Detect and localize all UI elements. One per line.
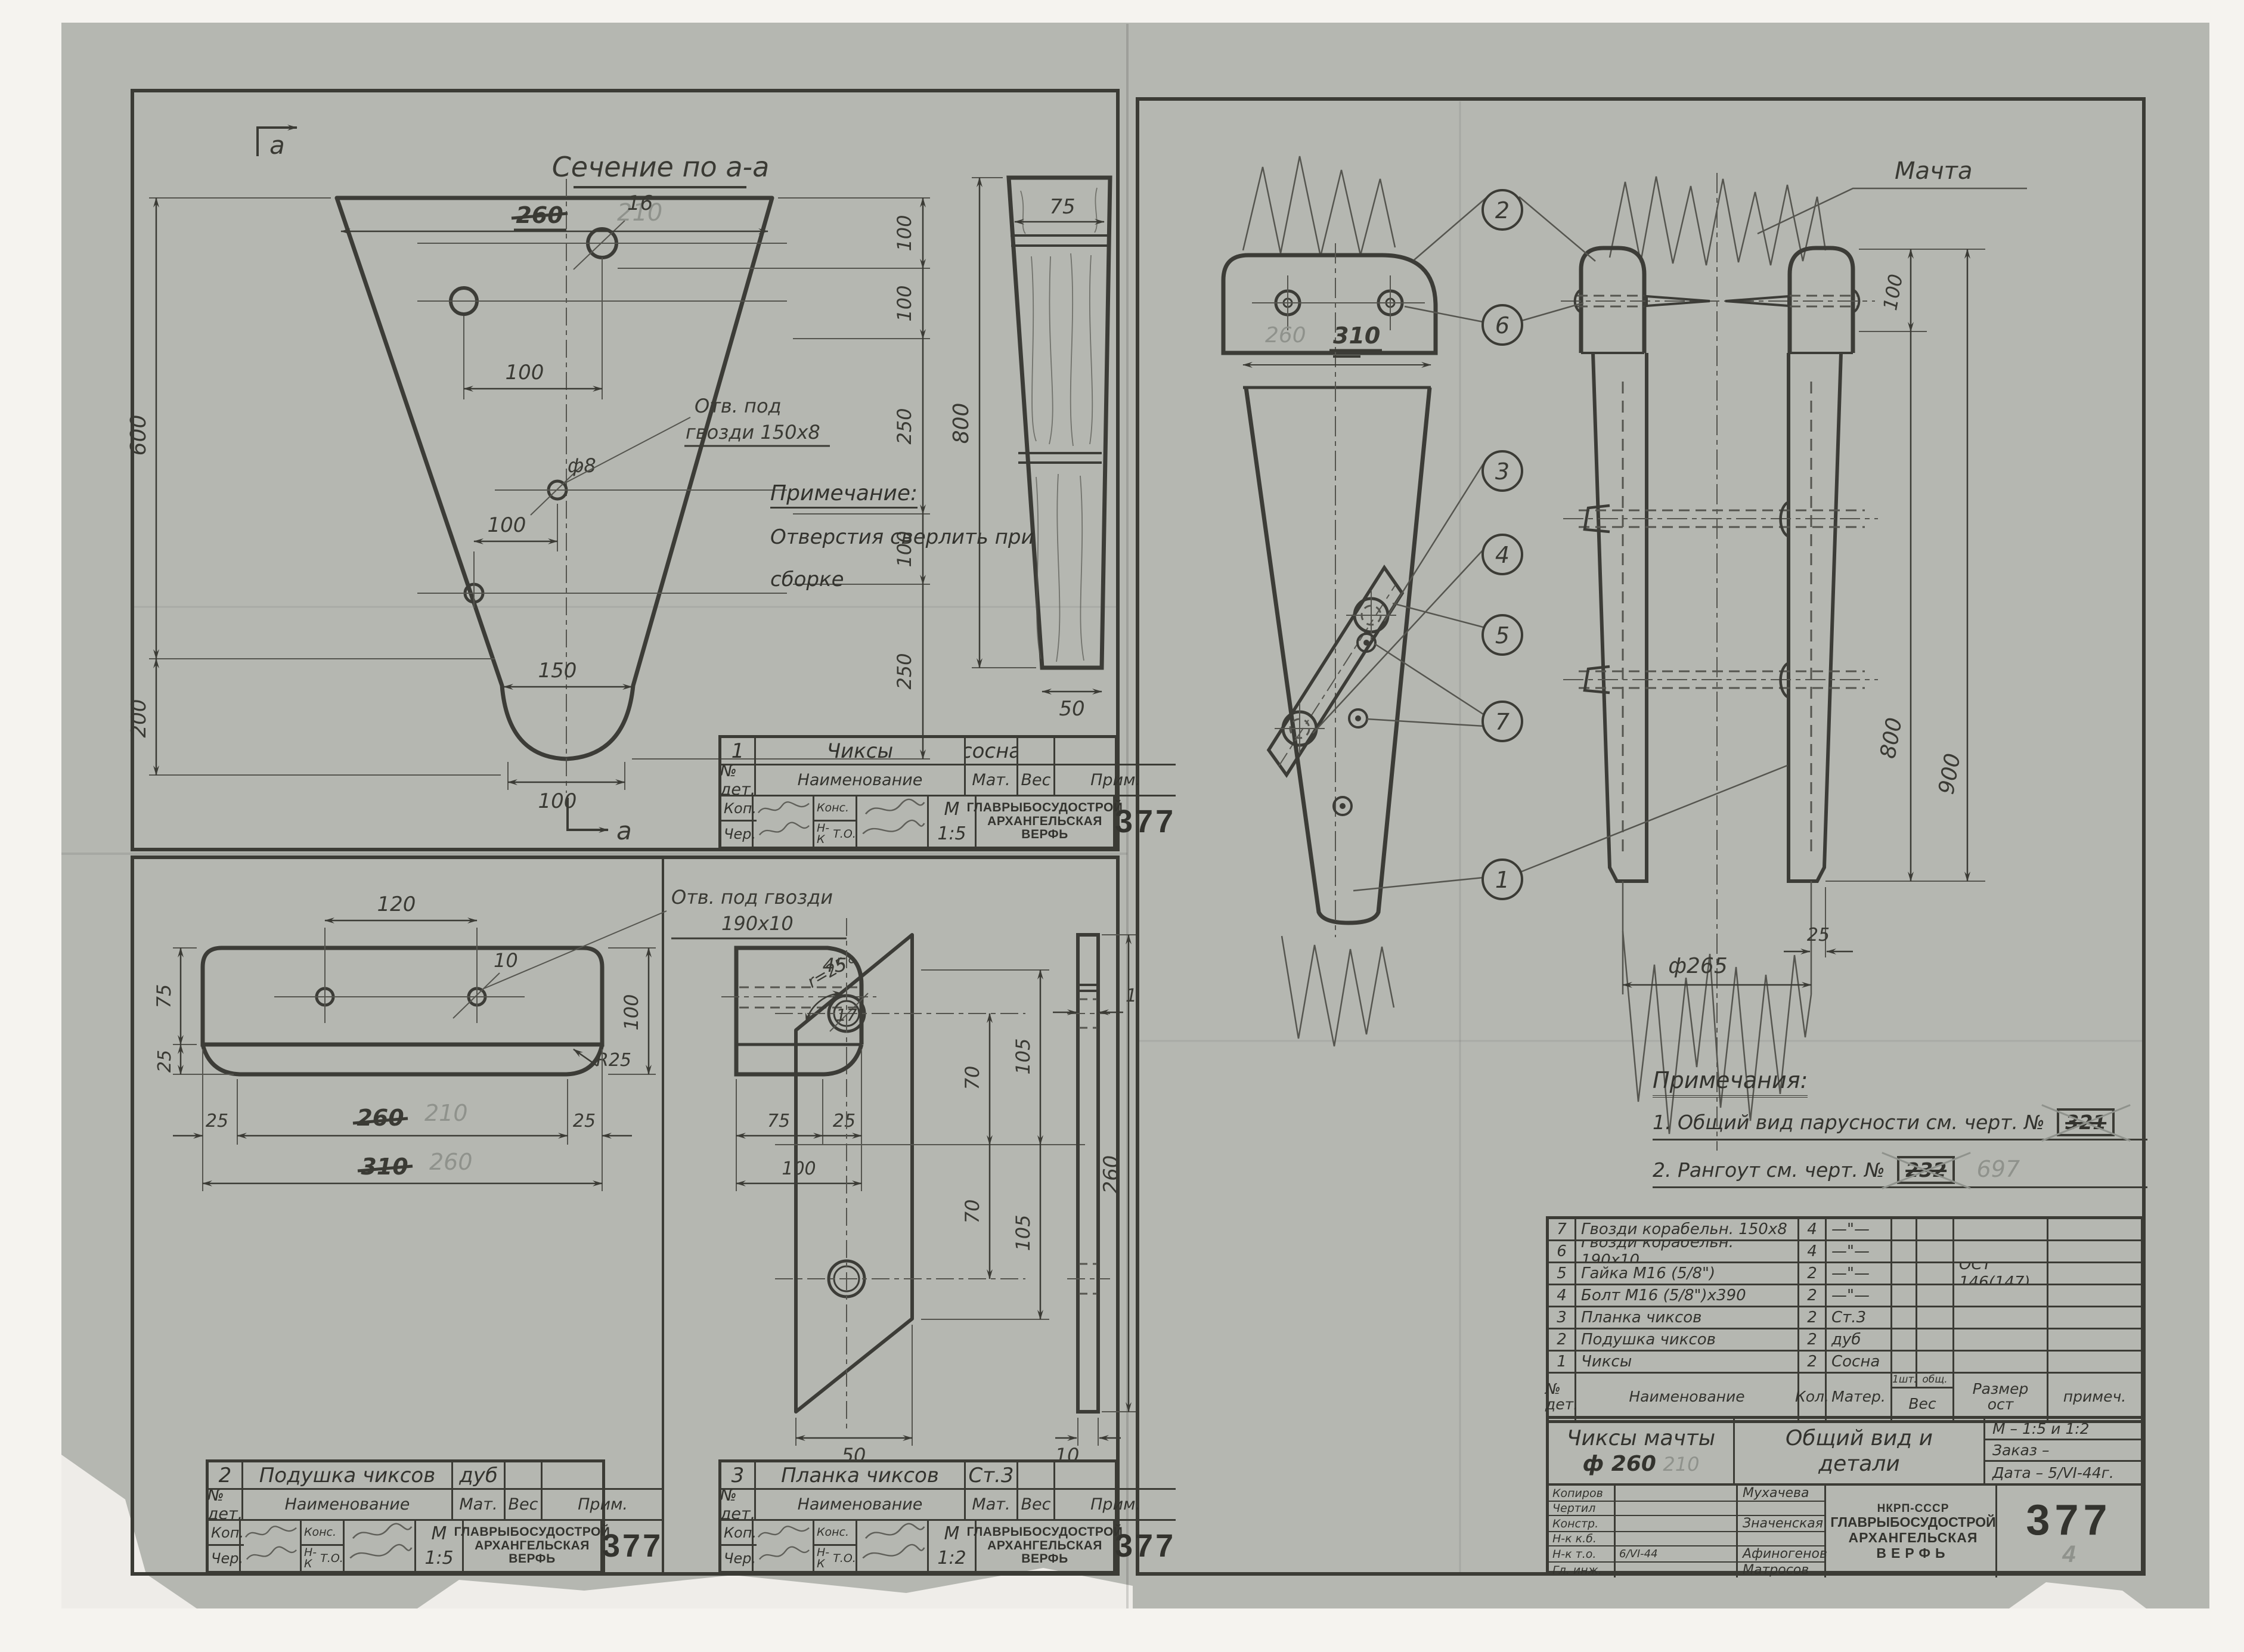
- parts-hdr-qty: Кол.: [1799, 1374, 1827, 1420]
- main-order: Заказ –: [1985, 1440, 2141, 1462]
- svg-text:ф265: ф265: [1668, 954, 1728, 978]
- svg-text:Отв. под: Отв. под: [695, 395, 782, 417]
- parts-hdr-weight: 1шт.общ. Вес: [1892, 1374, 1954, 1420]
- tb1-part-name: Чиксы: [756, 738, 966, 764]
- svg-text:260: 260: [1265, 323, 1306, 348]
- parts-header: № дет. Наименование Кол. Матер. 1шт.общ.…: [1549, 1374, 2141, 1420]
- notes-item-1: 1. Общий вид парусности см. черт. № 321: [1653, 1108, 2147, 1140]
- tb2-hdr-prim: Прим.: [543, 1490, 663, 1519]
- section-title: Сечение по а-а: [552, 151, 770, 187]
- svg-text:260: 260: [1099, 1155, 1123, 1194]
- svg-text:120: 120: [377, 892, 416, 916]
- svg-text:100: 100: [893, 215, 916, 251]
- main-scale: М – 1:5 и 1:2: [1985, 1419, 2141, 1440]
- tb2-hdr-mat: Мат.: [453, 1490, 506, 1519]
- notes-title: Примечания:: [1653, 1067, 1808, 1098]
- name-nkto: Афиногенов: [1738, 1546, 1826, 1563]
- svg-text:25: 25: [154, 1050, 175, 1073]
- svg-text:100: 100: [893, 285, 916, 321]
- svg-text:260: 260: [429, 1149, 473, 1175]
- parts-list-table: 7Гвозди корабельн. 150х84—"— 6Гвозди кор…: [1546, 1216, 2144, 1423]
- tb2-part-mat: дуб: [453, 1462, 506, 1488]
- role-nkto: Н-к т.о.: [1549, 1546, 1616, 1563]
- parts-row: 5Гайка М16 (5/8")2—"—ОСТ 146(147): [1549, 1263, 2141, 1285]
- svg-text:310: 310: [1333, 323, 1380, 349]
- tb2-hdr-wt: Вес: [506, 1490, 543, 1519]
- main-title-pencil: 210: [1663, 1453, 1699, 1476]
- parts-row: 1Чиксы2Сосна: [1549, 1352, 2141, 1374]
- main-title: Чиксы мачты ф 260 210: [1549, 1419, 1735, 1483]
- main-subtitle: Общий вид идетали: [1735, 1419, 1985, 1483]
- tb1-hdr-no: № дет.: [721, 765, 756, 795]
- tb1-part-mat: сосна: [966, 738, 1018, 764]
- note-drill-on-assembly: Примечание: Отверстия сверлить при сборк…: [770, 471, 1050, 601]
- callout-5: 5: [1495, 622, 1510, 649]
- svg-text:200: 200: [127, 699, 151, 738]
- callout-6: 6: [1495, 312, 1510, 339]
- parts-hdr-no: № дет.: [1549, 1374, 1576, 1420]
- tb1-org1: ГЛАВРЫБОСУДОСТРОЙ: [967, 801, 1123, 815]
- svg-text:210: 210: [424, 1100, 468, 1126]
- svg-text:50: 50: [1059, 697, 1084, 721]
- tb3-hdr-prim: Прим.: [1055, 1490, 1176, 1519]
- svg-text:70: 70: [961, 1200, 984, 1224]
- svg-text:25: 25: [206, 1111, 228, 1132]
- parts-hdr-prim: примеч.: [2048, 1374, 2141, 1420]
- callout-2: 2: [1495, 197, 1510, 224]
- tb1-part-no: 1: [721, 738, 756, 764]
- tb1-cher: Чер.: [721, 822, 757, 847]
- tb3-part-name: Планка чиксов: [756, 1462, 966, 1488]
- tb3-part-no: 3: [721, 1462, 756, 1488]
- svg-text:100: 100: [620, 994, 643, 1030]
- svg-text:600: 600: [126, 415, 151, 456]
- note-title: Примечание:: [770, 481, 918, 509]
- svg-text:75: 75: [1049, 195, 1075, 219]
- svg-text:800: 800: [949, 403, 974, 444]
- tb1-kons: Конс.: [814, 796, 856, 822]
- svg-text:150: 150: [538, 659, 577, 683]
- svg-text:а: а: [616, 816, 632, 845]
- svg-text:100: 100: [782, 1158, 816, 1179]
- svg-text:105: 105: [1012, 1038, 1034, 1074]
- drawing-sheet: Сечение по а-а а 260 210 16: [0, 0, 2244, 1652]
- notes-item-2: 2. Рангоут см. черт. № 232 697: [1653, 1156, 2147, 1188]
- shipyard-logo-cell: АСВ НКРП-СССР ГЛАВРЫБОСУДОСТРОЙ АРХАНГЕЛ…: [1826, 1486, 1997, 1577]
- svg-text:45°: 45°: [823, 954, 857, 977]
- svg-text:70: 70: [961, 1066, 984, 1090]
- name-kopirov: Мухачева: [1738, 1486, 1826, 1502]
- svg-text:100: 100: [506, 361, 544, 385]
- callout-4: 4: [1495, 542, 1510, 568]
- svg-text:25: 25: [573, 1111, 596, 1132]
- notes-item1-text: 1. Общий вид парусности см. черт. №: [1653, 1111, 2045, 1134]
- main-title-block: Чиксы мачты ф 260 210 Общий вид идетали …: [1546, 1416, 2144, 1574]
- tb1-hdr-mat: Мат.: [966, 765, 1018, 795]
- name-glinzh: Матросов: [1738, 1563, 1826, 1577]
- parts-hdr-mat: Матер.: [1827, 1374, 1892, 1420]
- role-nkkb: Н-к к.б.: [1549, 1532, 1616, 1546]
- svg-text:16: 16: [627, 191, 653, 215]
- parts-row: 4Болт М16 (5/8")х3902—"—: [1549, 1285, 2141, 1307]
- tb1-number: 377: [1115, 796, 1176, 847]
- name-nkkb: [1738, 1532, 1826, 1546]
- parts-row: 7Гвозди корабельн. 150х84—"—: [1549, 1219, 2141, 1241]
- notes-item1-number: 321: [2057, 1108, 2115, 1136]
- svg-text:25: 25: [833, 1111, 856, 1132]
- tb2-scale: 1:5: [424, 1548, 453, 1569]
- tb1-org2: АРХАНГЕЛЬСКАЯ: [987, 815, 1102, 829]
- tb2-hdr-no: № дет.: [209, 1490, 243, 1519]
- svg-text:100: 100: [538, 789, 577, 813]
- tb2-number: 377: [602, 1521, 663, 1571]
- sheet-number-pencil: 4: [2062, 1541, 2075, 1568]
- role-konstr: Констр.: [1549, 1516, 1616, 1532]
- svg-text:190х10: 190х10: [721, 912, 794, 935]
- tb1-scale: 1:5: [937, 823, 966, 844]
- drawing-number-cell: 377 4: [1997, 1486, 2141, 1577]
- name-chertil: [1738, 1502, 1826, 1516]
- role-glinzh: Гл. инж.: [1549, 1563, 1616, 1577]
- tb3-number: 377: [1115, 1521, 1176, 1571]
- tb3-hdr-name: Наименование: [756, 1490, 966, 1519]
- tb3-part-mat: Ст.3: [966, 1462, 1018, 1488]
- section-title-text: Сечение по а-а: [552, 151, 770, 183]
- tb1-org3: ВЕРФЬ: [1021, 828, 1068, 842]
- org-name: НКРП-СССР ГЛАВРЫБОСУДОСТРОЙ АРХАНГЕЛЬСКА…: [1830, 1502, 1995, 1561]
- tb3-hdr-no: № дет.: [721, 1490, 756, 1519]
- notes-item2-text: 2. Рангоут см. черт. №: [1653, 1158, 1885, 1182]
- tb3-scale: 1:2: [937, 1548, 966, 1569]
- svg-text:Мачта: Мачта: [1895, 157, 1972, 185]
- callout-7: 7: [1495, 709, 1510, 735]
- svg-text:17: 17: [836, 1005, 857, 1025]
- title-block-plank: 3 Планка чиксов Ст.3 № дет. Наименование…: [718, 1459, 1118, 1574]
- svg-text:1: 1: [1126, 985, 1137, 1006]
- tb1-kop: Коп.: [721, 796, 757, 822]
- main-date: Дата – 5/VI-44г.: [1985, 1462, 2141, 1483]
- svg-text:Отв. под гвозди: Отв. под гвозди: [671, 886, 833, 909]
- parts-row: 3Планка чиксов2Ст.3: [1549, 1307, 2141, 1329]
- name-konstr: Значенская: [1738, 1516, 1826, 1532]
- notes-references: Примечания: 1. Общий вид парусности см. …: [1653, 1067, 2147, 1204]
- role-chertil: Чертил: [1549, 1502, 1616, 1516]
- tb2-hdr-name: Наименование: [243, 1490, 453, 1519]
- tb1-hdr-wt: Вес: [1018, 765, 1055, 795]
- callout-3: 3: [1495, 458, 1510, 485]
- note-line1: Отверстия сверлить при: [770, 525, 1034, 549]
- svg-text:10: 10: [494, 949, 518, 972]
- svg-text:75: 75: [767, 1111, 790, 1132]
- notes-item2-number: 232: [1897, 1156, 1955, 1184]
- drawing-number: 377: [2026, 1496, 2112, 1545]
- parts-row: 6Гвозди корабельн. 190х104—"—: [1549, 1241, 2141, 1263]
- tb2-part-no: 2: [209, 1462, 243, 1488]
- svg-text:гвозди 150х8: гвозди 150х8: [686, 421, 820, 444]
- notes-item2-pencil-number: 697: [1977, 1156, 2020, 1182]
- signature-date: 6/VI-44: [1619, 1548, 1658, 1560]
- tb1-hdr-prim: Прим.: [1055, 765, 1176, 795]
- svg-text:а: а: [269, 131, 285, 160]
- svg-text:250: 250: [893, 408, 916, 444]
- svg-text:105: 105: [1012, 1214, 1034, 1251]
- svg-text:R25: R25: [596, 1050, 631, 1071]
- svg-text:260: 260: [357, 1105, 404, 1131]
- title-block-cheeks: 1 Чиксы сосна № дет. Наименование Мат. В…: [718, 735, 1118, 850]
- svg-text:75: 75: [153, 984, 175, 1009]
- tb3-hdr-mat: Мат.: [966, 1490, 1018, 1519]
- parts-hdr-razm: Размерост: [1954, 1374, 2048, 1420]
- parts-row: 2Подушка чиксов2дуб: [1549, 1329, 2141, 1352]
- title-block-cushion: 2 Подушка чиксов дуб № дет. Наименование…: [206, 1459, 605, 1574]
- tb3-hdr-wt: Вес: [1018, 1490, 1055, 1519]
- parts-hdr-name: Наименование: [1576, 1374, 1799, 1420]
- role-kopirov: Копиров: [1549, 1486, 1616, 1502]
- svg-text:250: 250: [893, 653, 916, 689]
- tb1-scale-m: М: [944, 799, 960, 820]
- callout-1: 1: [1495, 867, 1510, 893]
- note-line2: сборке: [770, 568, 844, 591]
- svg-text:25: 25: [1807, 925, 1830, 946]
- tb2-part-name: Подушка чиксов: [243, 1462, 453, 1488]
- tb1-hdr-name: Наименование: [756, 765, 966, 795]
- svg-text:100: 100: [488, 513, 526, 537]
